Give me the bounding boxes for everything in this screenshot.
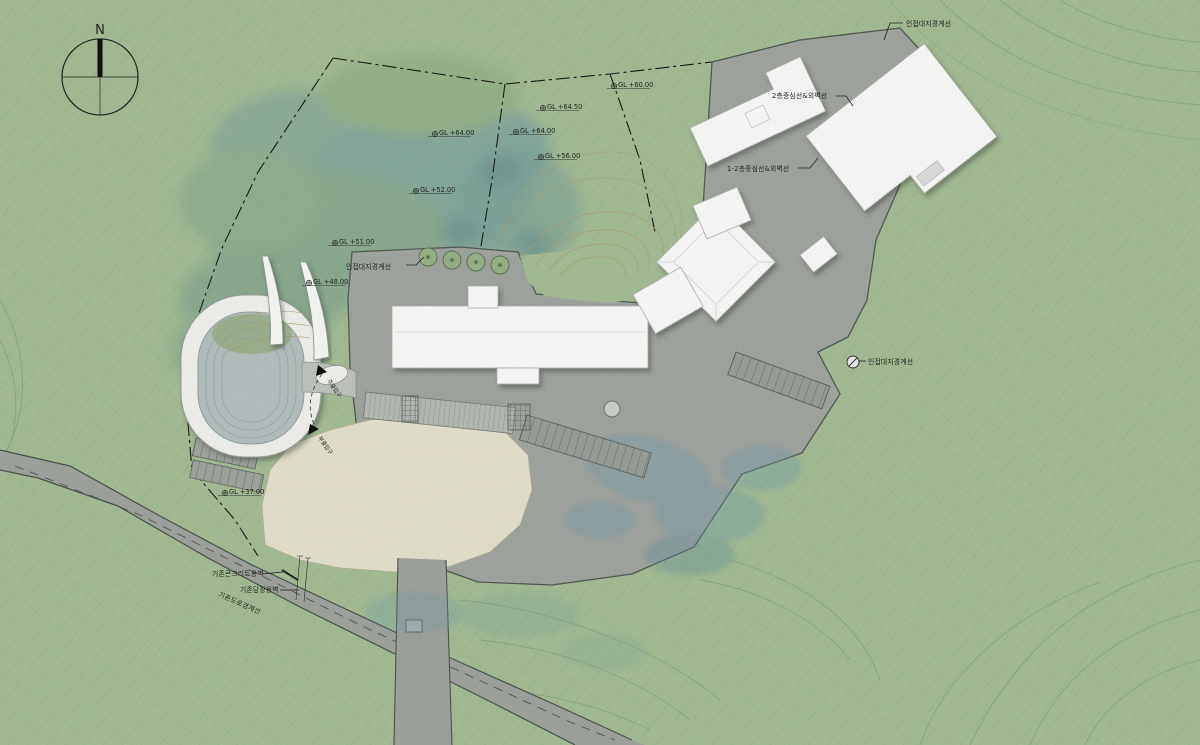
site-plan: 주출입구 부출입구: [0, 0, 1200, 745]
paper-grain-overlay: [0, 0, 1200, 745]
site-plan-canvas: 주출입구 부출입구: [0, 0, 1200, 745]
